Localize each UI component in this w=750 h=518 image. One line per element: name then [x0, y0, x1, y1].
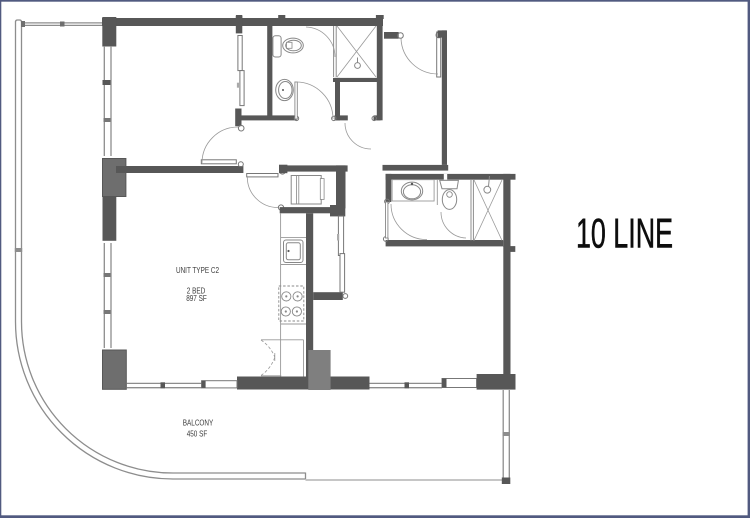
svg-text:450 SF: 450 SF — [187, 429, 208, 439]
svg-text:UNIT TYPE C2: UNIT TYPE C2 — [176, 265, 219, 275]
svg-text:897 SF: 897 SF — [186, 293, 207, 303]
svg-text:10 LINE: 10 LINE — [576, 210, 673, 256]
svg-text:BALCONY: BALCONY — [183, 418, 214, 428]
